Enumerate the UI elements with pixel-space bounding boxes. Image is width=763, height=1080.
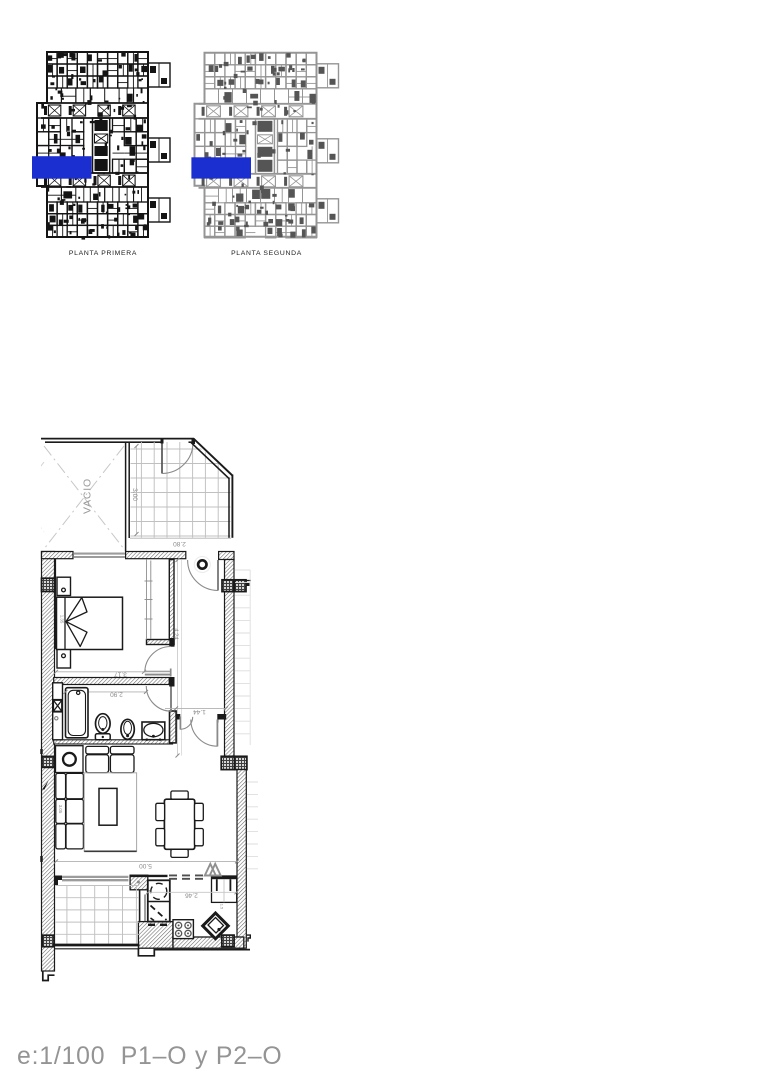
svg-text:PLANTA PRIMERA: PLANTA PRIMERA [69,250,137,257]
svg-text:2.46: 2.46 [185,892,198,899]
svg-text:2.80: 2.80 [173,540,186,547]
svg-text:1.5: 1.5 [219,904,224,910]
svg-text:PLANTA SEGUNDA: PLANTA SEGUNDA [231,250,302,257]
svg-text:3.00: 3.00 [131,488,138,501]
svg-text:5.00: 5.00 [139,862,152,869]
svg-text:2.90: 2.90 [110,690,123,697]
svg-text:1.44: 1.44 [193,708,206,715]
svg-text:3.05: 3.05 [58,805,63,814]
svg-text:VACIO: VACIO [82,478,94,514]
svg-text:e:1/100 P1–O y P2–O: e:1/100 P1–O y P2–O [17,1043,283,1070]
svg-text:3.17: 3.17 [114,671,127,678]
svg-text:4.24: 4.24 [172,628,178,640]
svg-text:1.35: 1.35 [59,615,64,624]
